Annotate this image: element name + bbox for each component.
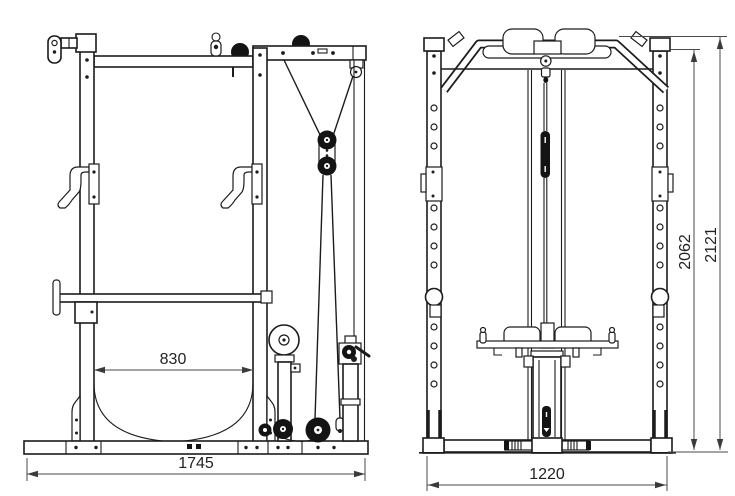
dimension-overall-width: 1220 [427,456,667,491]
dimension-frame-height: 2062 [669,50,700,451]
carabiner-icon [211,33,221,56]
dimension-overall-depth: 1745 [27,455,365,481]
power-cage-drawing: 830 1745 1220 2062 2121 [0,0,735,496]
dimension-label-2062: 2062 [677,234,694,270]
adjustment-pin [542,406,551,437]
side-base-beam [24,441,368,454]
side-front-upright [48,34,96,448]
dimension-inner-depth: 830 [94,351,253,373]
dimension-label-830: 830 [160,351,187,368]
front-view [419,29,676,453]
dimension-label-1745: 1745 [178,455,214,472]
base-gussets [72,383,275,441]
cable-hanger [541,56,551,83]
dimension-label-1220: 1220 [529,466,565,483]
j-hook-front [58,164,99,208]
dimension-overall-height: 2121 [619,37,728,453]
bar-roller-right [652,289,669,306]
dimension-label-2121: 2121 [703,227,720,263]
bar-roller-left [426,289,443,306]
top-side-rail [94,56,253,67]
j-hook-rear [221,164,262,208]
lat-tower-arm [253,46,366,60]
center-column [524,351,570,440]
double-pulley [318,131,337,176]
technical-drawing-page: 830 1745 1220 2062 2121 [0,0,735,496]
pullup-bar [441,29,666,90]
side-view [24,33,369,454]
side-rear-upright [253,48,267,448]
